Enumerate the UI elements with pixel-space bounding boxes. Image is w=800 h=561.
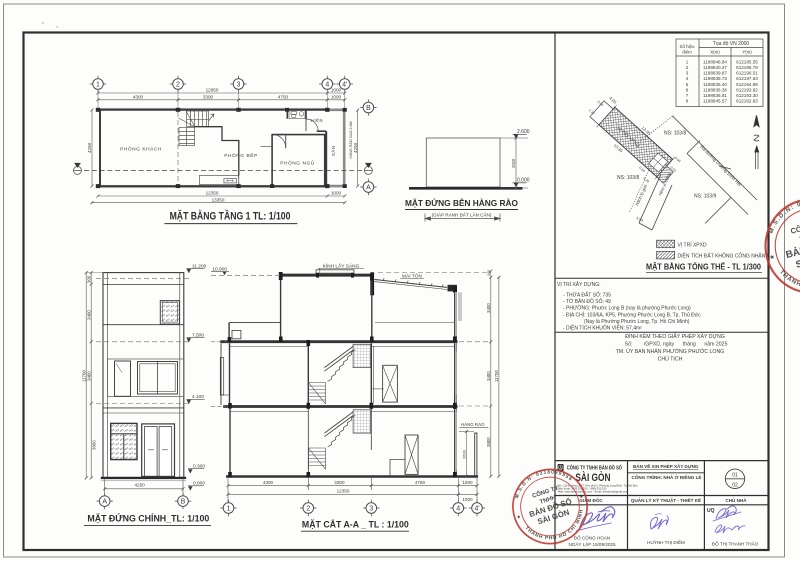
svg-text:VỊ TRÍ XPXD: VỊ TRÍ XPXD — [678, 241, 707, 248]
svg-text:4: 4 — [325, 82, 329, 89]
svg-text:SÀI GÒN: SÀI GÒN — [575, 471, 610, 484]
svg-text:4300: 4300 — [133, 94, 144, 99]
svg-text:3300: 3300 — [334, 480, 345, 485]
svg-text:1198835.40: 1198835.40 — [703, 82, 727, 87]
svg-text:CÔNG TY TNHH BẢN ĐỒ SỐ: CÔNG TY TNHH BẢN ĐỒ SỐ — [567, 463, 622, 471]
svg-text:1: 1 — [227, 504, 231, 513]
svg-text:2600: 2600 — [511, 158, 516, 168]
svg-text:7: 7 — [686, 93, 689, 98]
svg-text:612194.99: 612194.99 — [736, 82, 758, 87]
svg-text:- PHƯỜNG: Phước Long B (nay là: - PHƯỜNG: Phước Long B (nay là phường Ph… — [563, 305, 691, 312]
svg-text:Y(m): Y(m) — [742, 50, 752, 55]
svg-text:- THỬA ĐẤT SỐ: 735: - THỬA ĐẤT SỐ: 735 — [563, 291, 611, 298]
svg-text:B: B — [366, 105, 371, 112]
svg-text:13350: 13350 — [212, 197, 225, 202]
svg-text:3: 3 — [369, 504, 373, 513]
svg-text:NS: 103/8: NS: 103/8 — [617, 175, 639, 181]
svg-text:4: 4 — [456, 504, 460, 513]
svg-text:612195.79: 612195.79 — [736, 65, 758, 70]
svg-text:TM. ỦY BAN NHÂN PHƯỜNG PHƯỚC L: TM. ỦY BAN NHÂN PHƯỜNG PHƯỚC LONG — [616, 348, 724, 355]
svg-text:ĐỖ THỊ THANH THẢO: ĐỖ THỊ THANH THẢO — [712, 541, 759, 547]
svg-text:1000: 1000 — [462, 497, 473, 502]
svg-text:Số hiệu: Số hiệu — [680, 44, 695, 49]
svg-text:02: 02 — [732, 483, 738, 489]
svg-text:3: 3 — [686, 71, 689, 76]
svg-text:4250: 4250 — [134, 482, 145, 487]
svg-text:2600: 2600 — [461, 449, 466, 459]
svg-text:PHÒNG NGỦ: PHÒNG NGỦ — [280, 160, 315, 167]
svg-text:SÂN: SÂN — [331, 145, 336, 156]
svg-text:A: A — [102, 499, 107, 506]
svg-text:612196.51: 612196.51 — [736, 71, 758, 76]
svg-text:B: B — [181, 499, 186, 506]
svg-text:HÀNG RÀO CAO 2.6M: HÀNG RÀO CAO 2.6M — [349, 122, 353, 159]
svg-text:4300: 4300 — [263, 480, 274, 485]
svg-text:4750: 4750 — [278, 94, 289, 99]
svg-text:ĐỖ CÔNG HOAN: ĐỖ CÔNG HOAN — [574, 535, 611, 541]
svg-text:1000: 1000 — [331, 94, 342, 99]
svg-text:Tọa độ VN 2000: Tọa độ VN 2000 — [713, 41, 750, 47]
svg-text:2: 2 — [306, 504, 310, 513]
svg-text:1000: 1000 — [331, 191, 342, 196]
svg-text:DIỆN TÍCH ĐẤT KHÔNG CÔNG NHẬN: DIỆN TÍCH ĐẤT KHÔNG CÔNG NHẬN — [678, 252, 766, 260]
svg-text:612193.82: 612193.82 — [736, 87, 758, 92]
svg-text:(GIÁP RANH ĐẤT LÂN CẬN): (GIÁP RANH ĐẤT LÂN CẬN) — [432, 211, 492, 217]
svg-text:1198848.84: 1198848.84 — [703, 59, 727, 64]
svg-text:HÀNG RÀO: HÀNG RÀO — [461, 422, 485, 427]
svg-text:CHỦ TỊCH: CHỦ TỊCH — [658, 356, 683, 363]
svg-text:1198836.81: 1198836.81 — [703, 93, 727, 98]
svg-text:NS: 103/8: NS: 103/8 — [664, 131, 686, 137]
svg-text:3400: 3400 — [86, 371, 91, 381]
svg-text:01: 01 — [732, 473, 738, 479]
svg-text:NS: 103/9: NS: 103/9 — [694, 194, 716, 200]
svg-text:MẶT CẮT A-A _ TL : 1/100: MẶT CẮT A-A _ TL : 1/100 — [302, 520, 409, 531]
svg-text:4250: 4250 — [353, 142, 358, 153]
svg-text:12950: 12950 — [206, 88, 219, 93]
svg-text:4250: 4250 — [87, 142, 92, 153]
svg-text:1198838.73: 1198838.73 — [703, 76, 727, 81]
svg-text:300: 300 — [487, 270, 491, 276]
svg-text:3400: 3400 — [486, 303, 491, 313]
svg-text:300: 300 — [86, 275, 91, 283]
svg-text:PHÒNG KHÁCH: PHÒNG KHÁCH — [120, 146, 162, 153]
svg-text:HIÊN: HIÊN — [311, 118, 323, 123]
svg-text:QUẢN LÝ KỸ THUẬT - THIẾT KẾ: QUẢN LÝ KỸ THUẬT - THIẾT KẾ — [631, 497, 701, 503]
svg-text:MẶT BẰNG TỔNG THỂ - TL 1/300: MẶT BẰNG TỔNG THỂ - TL 1/300 — [646, 261, 761, 272]
svg-text:12350: 12350 — [206, 191, 219, 196]
svg-text:6: 6 — [686, 87, 689, 92]
svg-text:PHÒNG BẾP: PHÒNG BẾP — [224, 152, 257, 159]
svg-text:ĐÍNH KÈM THEO GIẤY PHÉP XÂY DỰ: ĐÍNH KÈM THEO GIẤY PHÉP XÂY DỰNG — [625, 333, 724, 340]
svg-text:CHỦ NHÀ: CHỦ NHÀ — [725, 497, 747, 503]
svg-text:11700: 11700 — [81, 370, 86, 382]
svg-text:11700: 11700 — [494, 370, 499, 382]
svg-text:- DIỆN TÍCH KHUÔN VIÊN: 57,4m: - DIỆN TÍCH KHUÔN VIÊN: 57,4m² — [563, 323, 642, 331]
svg-text:4: 4 — [686, 76, 689, 81]
svg-text:NGÀY LẬP 15/09/2025: NGÀY LẬP 15/09/2025 — [568, 541, 616, 547]
svg-text:612182.83: 612182.83 — [736, 99, 758, 104]
svg-text:2: 2 — [686, 65, 689, 70]
svg-text:X(m): X(m) — [710, 50, 720, 55]
svg-text:3800: 3800 — [92, 440, 97, 450]
svg-text:3300: 3300 — [203, 94, 214, 99]
svg-text:1: 1 — [96, 82, 100, 89]
svg-text:1: 1 — [686, 59, 689, 64]
svg-text:612197.63: 612197.63 — [736, 76, 758, 81]
svg-text:4': 4' — [342, 82, 347, 89]
svg-text:MẶT ĐỨNG CHÍNH_TL: 1/100: MẶT ĐỨNG CHÍNH_TL: 1/100 — [87, 513, 209, 525]
svg-text:UQ: UQ — [707, 508, 715, 514]
svg-text:- ĐỊA CHỈ: 103/6A, KP5, Phườ: - ĐỊA CHỈ: 103/6A, KP5, Phường Phước Lon… — [563, 311, 701, 318]
svg-text:612185.55: 612185.55 — [736, 59, 758, 64]
svg-text:Số: /GPXD, ngày th: Số: /GPXD, ngày tháng năm 2025 — [625, 342, 728, 348]
svg-text:1198845.57: 1198845.57 — [703, 99, 727, 104]
svg-text:1198836.38: 1198836.38 — [703, 87, 727, 92]
svg-text:1000: 1000 — [331, 88, 342, 93]
svg-text:(Nay là Phường Phước Long, Tp.: (Nay là Phường Phước Long, Tp. Hồ Chí Mi… — [584, 319, 690, 325]
svg-text:1198840.27: 1198840.27 — [703, 65, 727, 70]
svg-text:MẶT BẰNG TẦNG 1 TL: 1/100: MẶT BẰNG TẦNG 1 TL: 1/100 — [170, 210, 291, 223]
svg-text:8: 8 — [686, 99, 689, 104]
svg-text:5: 5 — [686, 82, 689, 87]
svg-text:3400: 3400 — [86, 310, 91, 320]
svg-text:A: A — [366, 185, 371, 192]
svg-text:4': 4' — [474, 504, 480, 513]
svg-text:3800: 3800 — [486, 437, 491, 447]
svg-text:12350: 12350 — [337, 489, 350, 494]
svg-text:1000: 1000 — [462, 480, 473, 485]
svg-text:1198839.87: 1198839.87 — [703, 71, 727, 76]
svg-text:2: 2 — [176, 82, 180, 89]
svg-text:4750: 4750 — [415, 480, 426, 485]
svg-text:điểm: điểm — [682, 50, 692, 55]
svg-text:3400: 3400 — [486, 371, 491, 381]
svg-text:MẶT ĐỨNG BÊN HÀNG RÀO: MẶT ĐỨNG BÊN HÀNG RÀO — [405, 197, 518, 208]
svg-text:612193.30: 612193.30 — [736, 93, 758, 98]
svg-text:VỊ TRÍ XÂY DỰNG:: VỊ TRÍ XÂY DỰNG: — [557, 281, 601, 288]
svg-text:- TỜ BẢN ĐỒ SỐ: 49: - TỜ BẢN ĐỒ SỐ: 49 — [563, 298, 611, 305]
svg-text:HUỲNH THỊ DIỄM: HUỲNH THỊ DIỄM — [647, 539, 685, 545]
svg-text:Web: www.bandosohcm.com - Emai: Web: www.bandosohcm.com - Email: bandoso… — [558, 490, 629, 494]
svg-text:3: 3 — [237, 82, 241, 89]
